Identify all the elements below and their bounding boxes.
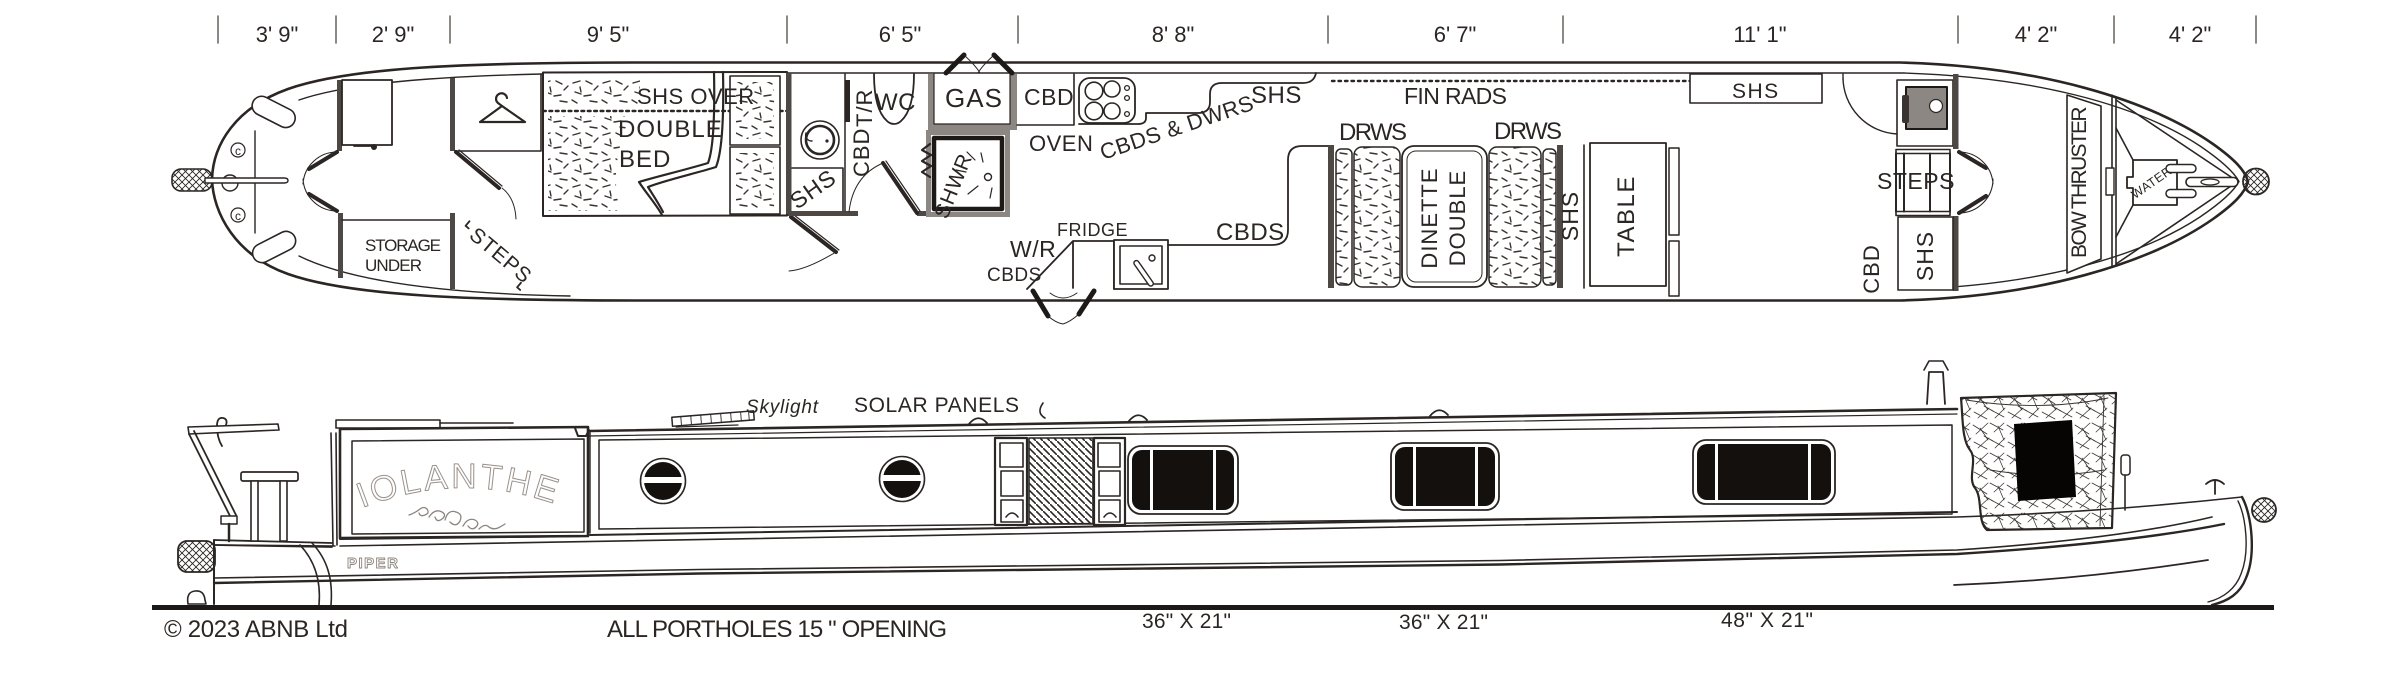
svg-text:WC: WC	[875, 89, 916, 116]
svg-text:SHS: SHS	[1557, 191, 1583, 241]
svg-text:CBD: CBD	[1859, 244, 1884, 293]
svg-text:FRIDGE: FRIDGE	[1057, 220, 1128, 240]
svg-text:PIPER: PIPER	[347, 555, 400, 572]
svg-text:DRWS: DRWS	[1494, 118, 1562, 145]
svg-text:6' 5": 6' 5"	[879, 22, 922, 47]
svg-text:GAS: GAS	[945, 83, 1003, 113]
svg-text:Skylight: Skylight	[746, 397, 819, 418]
svg-text:DRWS: DRWS	[1339, 119, 1407, 146]
svg-text:CBD: CBD	[1024, 84, 1074, 110]
svg-text:BOW THRUSTER: BOW THRUSTER	[2068, 106, 2091, 258]
svg-text:OVEN: OVEN	[1029, 131, 1093, 156]
svg-text:STORAGE: STORAGE	[365, 236, 441, 255]
svg-text:DOUBLE: DOUBLE	[618, 116, 723, 143]
svg-text:c: c	[235, 144, 241, 158]
svg-text:T/R: T/R	[852, 89, 877, 127]
svg-text:6' 7": 6' 7"	[1434, 22, 1477, 47]
svg-text:36" X 21": 36" X 21"	[1399, 611, 1488, 634]
svg-text:STEPS: STEPS	[1877, 168, 1955, 194]
svg-text:BED: BED	[619, 146, 671, 173]
svg-text:48" X 21": 48" X 21"	[1721, 609, 1813, 632]
svg-text:c: c	[235, 209, 241, 223]
svg-text:DOUBLE: DOUBLE	[1445, 170, 1470, 266]
svg-text:W/R: W/R	[1010, 236, 1056, 262]
svg-text:ALL PORTHOLES 15 " OPENING: ALL PORTHOLES 15 " OPENING	[607, 616, 947, 643]
svg-text:TABLE: TABLE	[1613, 175, 1640, 257]
svg-text:4' 2": 4' 2"	[2015, 22, 2058, 47]
svg-text:36" X 21": 36" X 21"	[1142, 610, 1231, 633]
svg-text:SHS: SHS	[1251, 82, 1302, 109]
svg-text:FIN RADS: FIN RADS	[1404, 83, 1507, 109]
svg-text:SHS: SHS	[1912, 231, 1938, 281]
svg-text:3' 9": 3' 9"	[256, 22, 299, 47]
svg-text:CBDS: CBDS	[1216, 219, 1285, 246]
svg-text:8' 8": 8' 8"	[1152, 22, 1195, 47]
svg-text:2' 9": 2' 9"	[372, 22, 415, 47]
svg-text:DINETTE: DINETTE	[1417, 167, 1442, 268]
svg-text:11' 1": 11' 1"	[1733, 22, 1786, 47]
svg-text:CBD: CBD	[849, 128, 874, 177]
svg-text:SOLAR PANELS: SOLAR PANELS	[854, 394, 1020, 417]
svg-text:© 2023 ABNB Ltd: © 2023 ABNB Ltd	[164, 616, 348, 643]
svg-text:SHS OVER: SHS OVER	[637, 84, 755, 109]
svg-text:SHS: SHS	[1732, 80, 1780, 103]
svg-text:CBDS: CBDS	[987, 265, 1042, 286]
svg-text:4' 2": 4' 2"	[2169, 22, 2212, 47]
svg-text:9' 5": 9' 5"	[587, 22, 630, 47]
svg-text:UNDER: UNDER	[365, 256, 422, 275]
